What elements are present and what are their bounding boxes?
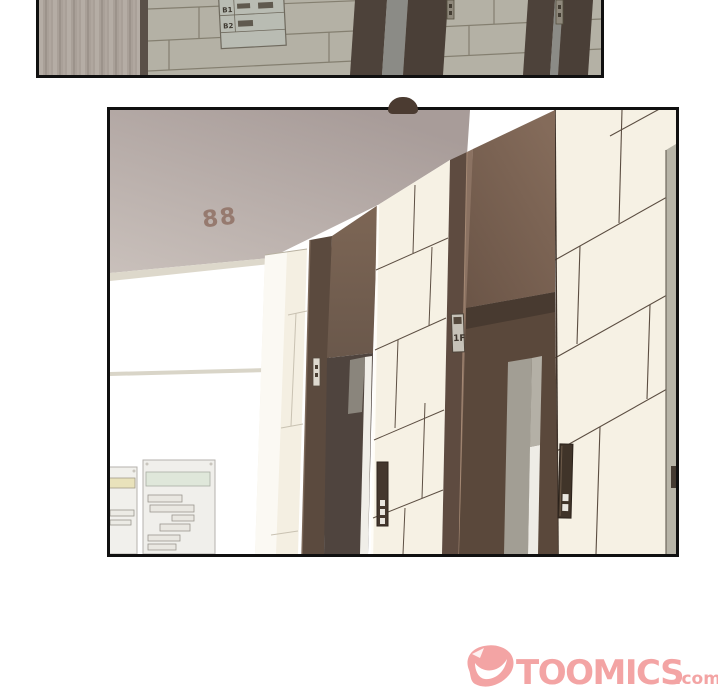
info-board-2: [143, 460, 215, 554]
door-lock-plate: [447, 0, 454, 19]
striped-wall: [39, 0, 140, 75]
toomics-logo-text: TOOMICS: [516, 653, 683, 693]
ceiling-number: 88: [201, 203, 239, 233]
sign-row-label-b2: B2: [223, 22, 234, 31]
directory-sign: B1 B2: [219, 0, 287, 49]
panel-main: 88: [107, 107, 679, 557]
keypad-lock-1: [377, 462, 388, 526]
comic-page: B1 B2: [0, 0, 720, 700]
door-edge-highlight: [528, 445, 540, 554]
panel-top-art: B1 B2: [39, 0, 601, 75]
toomics-logo-suffix: .com: [675, 669, 718, 689]
panel-main-art: 88: [110, 110, 676, 554]
door-lock-plate: [556, 0, 563, 24]
toomics-logo: TOOMICS .com: [462, 640, 718, 696]
panel-top: B1 B2: [36, 0, 604, 78]
hall-door-unit-a: [350, 0, 454, 75]
door-lock-plate-1: [313, 358, 320, 386]
door-alcove-2: [459, 110, 558, 554]
middle-tile-pillar: [372, 160, 450, 554]
floor-plate-1f: 1F: [451, 314, 466, 352]
wall-divider: [140, 0, 148, 75]
sign-row-label-b1: B1: [222, 6, 233, 15]
floor-plate-label: 1F: [453, 334, 466, 344]
keypad-lock-2: [558, 444, 573, 518]
hall-door-unit-b: [523, 0, 593, 75]
toomics-logo-mark: [467, 645, 513, 686]
frame-latch-notch: [671, 466, 676, 488]
info-board-1: [110, 467, 137, 554]
overflow-arc-shape: [388, 97, 418, 114]
right-tile-pillar: [555, 110, 676, 554]
right-door-frame: [666, 144, 676, 554]
